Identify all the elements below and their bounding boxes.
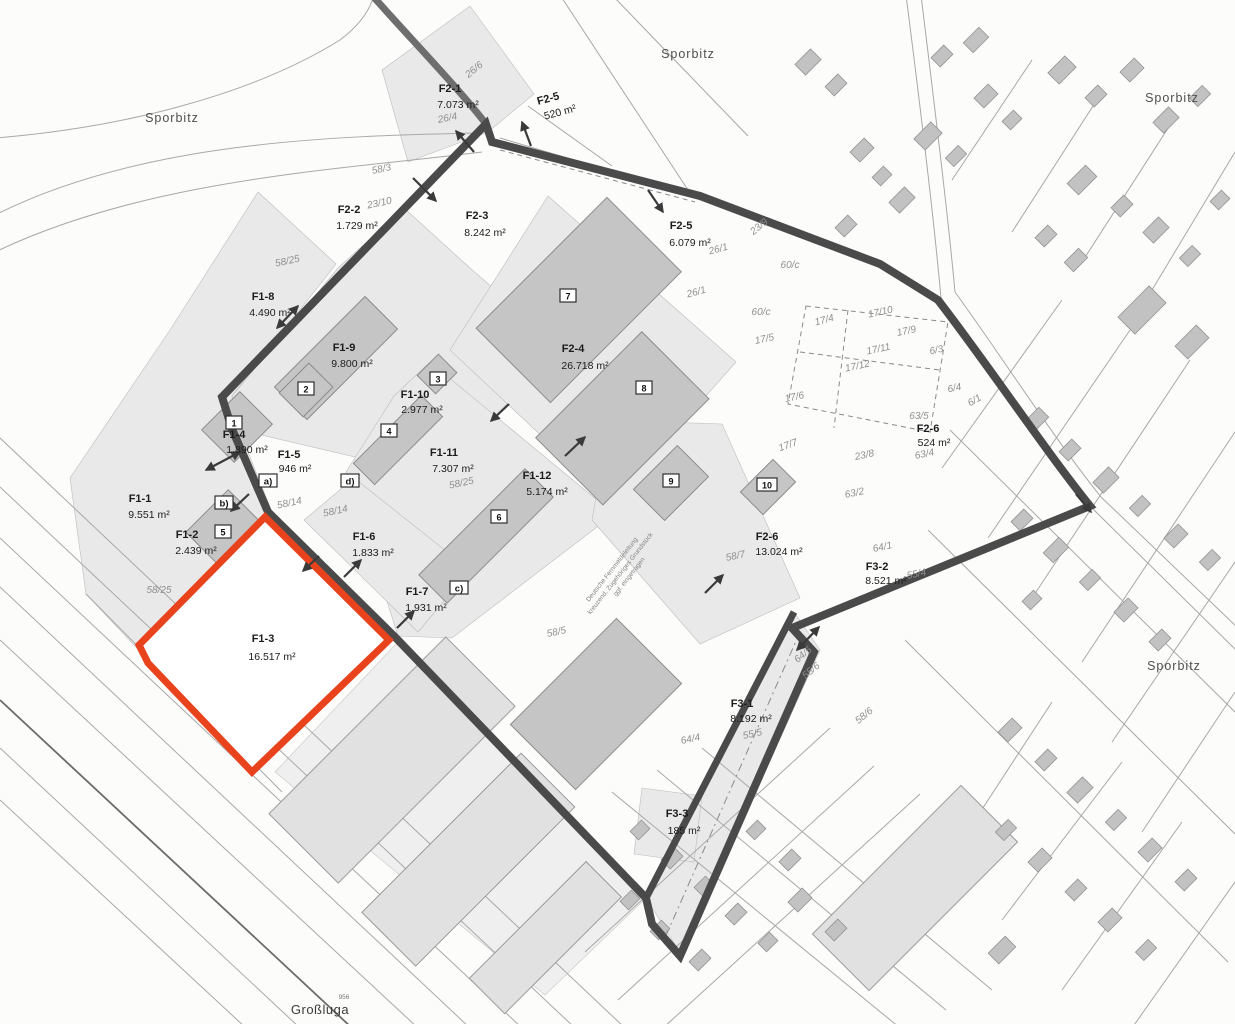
house-building bbox=[889, 187, 915, 213]
house-building bbox=[1149, 629, 1171, 651]
building-number: 1 bbox=[231, 419, 236, 429]
house-building bbox=[1048, 56, 1076, 84]
parcel-area: 7.073 m² bbox=[437, 99, 479, 111]
parcel-id: F1-4 bbox=[223, 429, 247, 441]
house-building bbox=[825, 74, 847, 96]
parcel-area: 6.079 m² bbox=[669, 237, 711, 249]
house-building bbox=[1135, 939, 1156, 960]
parcel-area: 1.833 m² bbox=[352, 547, 394, 559]
parcel-area: 5.174 m² bbox=[526, 486, 568, 498]
house-building bbox=[998, 718, 1022, 742]
parcel-area: 1.931 m² bbox=[405, 602, 447, 614]
house-building bbox=[1059, 439, 1081, 461]
parcel-id: F1-1 bbox=[129, 493, 152, 505]
letter-marker: d) bbox=[346, 477, 355, 488]
lot-number: 6/4 bbox=[947, 382, 963, 396]
house-building bbox=[1093, 467, 1119, 493]
parcel-id: F1-11 bbox=[430, 447, 458, 459]
house-building bbox=[963, 27, 988, 52]
parcel-area: 185 m² bbox=[668, 825, 701, 837]
building-number: 6 bbox=[496, 513, 501, 523]
house-building bbox=[779, 849, 801, 871]
parcel-area: 16.517 m² bbox=[248, 651, 296, 663]
parcel-area: 2.977 m² bbox=[401, 404, 443, 416]
house-building bbox=[1079, 569, 1100, 590]
map-canvas: Sporbitz Sporbitz Sporbitz Sporbitz Groß… bbox=[0, 0, 1235, 1024]
parcel-id: F1-6 bbox=[353, 531, 376, 543]
lot-number: 6/1 bbox=[966, 393, 984, 409]
lot-number: 58/6 bbox=[853, 705, 875, 726]
parcel-area: 8.192 m² bbox=[730, 713, 772, 725]
lot-number: 63/5 bbox=[909, 411, 929, 422]
tiny-lot-label: 956 bbox=[339, 994, 350, 1001]
house-building bbox=[1114, 598, 1138, 622]
house-building bbox=[795, 49, 821, 75]
district-label: Sporbitz bbox=[145, 111, 199, 125]
parcel-area: 524 m² bbox=[918, 437, 951, 449]
house-building bbox=[1085, 85, 1107, 107]
parcel-area: 946 m² bbox=[279, 463, 312, 475]
lot-number: 23/10 bbox=[365, 195, 393, 211]
house-building bbox=[988, 936, 1016, 964]
lot-number: 60/c bbox=[752, 307, 771, 318]
house-building bbox=[850, 138, 874, 162]
parcel-area: 9.551 m² bbox=[128, 509, 170, 521]
lot-number: 17/12 bbox=[844, 358, 871, 374]
house-building bbox=[1153, 107, 1179, 133]
house-building bbox=[1143, 217, 1169, 243]
house-building bbox=[1022, 590, 1042, 610]
lot-number: 17/11 bbox=[865, 342, 891, 358]
building-number: 10 bbox=[762, 481, 772, 491]
place-label: Großluga bbox=[291, 1002, 349, 1017]
house-building bbox=[1035, 225, 1057, 247]
house-building bbox=[1067, 165, 1097, 195]
lot-number: 26/1 bbox=[685, 285, 708, 301]
lot-number: 17/7 bbox=[777, 437, 799, 454]
house-building bbox=[1002, 110, 1022, 130]
lot-number: 58/14 bbox=[276, 495, 303, 511]
parcel-area: 1.890 m² bbox=[226, 444, 268, 456]
parcel-id: F1-12 bbox=[523, 470, 552, 482]
lot-number: 58/5 bbox=[546, 625, 568, 640]
parcel-id: F2-2 bbox=[338, 204, 361, 216]
house-building bbox=[835, 215, 857, 237]
lot-number: 63/2 bbox=[844, 486, 866, 501]
arrow-icon bbox=[522, 122, 531, 146]
house-building bbox=[1064, 248, 1087, 271]
lot-number: 64/4 bbox=[680, 732, 702, 747]
building-number: 3 bbox=[435, 375, 440, 385]
parcel-id: F2-6 bbox=[756, 531, 779, 543]
letter-marker: b) bbox=[220, 499, 229, 510]
parcel-id: F1-3 bbox=[252, 633, 275, 645]
lot-number: 58/25 bbox=[146, 585, 171, 596]
parcel-area: 4.490 m² bbox=[249, 307, 291, 319]
building-number: 7 bbox=[565, 292, 570, 302]
parcel-id: F3-3 bbox=[666, 808, 689, 820]
district-label: Sporbitz bbox=[661, 47, 715, 61]
house-building bbox=[974, 84, 998, 108]
house-building bbox=[725, 903, 747, 925]
house-building bbox=[931, 45, 953, 67]
cadastral-map: Sporbitz Sporbitz Sporbitz Sporbitz Groß… bbox=[0, 0, 1235, 1024]
house-building bbox=[914, 122, 942, 150]
lot-number: 17/6 bbox=[784, 390, 806, 405]
building-number: 5 bbox=[220, 528, 225, 538]
house-building bbox=[1043, 537, 1068, 562]
parcel-id: F2-5 bbox=[536, 90, 561, 107]
parcel-id: F1-5 bbox=[278, 449, 301, 461]
building-number: 4 bbox=[386, 427, 391, 437]
house-building bbox=[746, 820, 766, 840]
house-building bbox=[758, 932, 778, 952]
parcel-id: F2-5 bbox=[670, 220, 693, 232]
house-building bbox=[1179, 245, 1200, 266]
house-building bbox=[1067, 777, 1093, 803]
lot-number: 23/8 bbox=[853, 448, 876, 463]
parcel-id: F2-1 bbox=[439, 83, 462, 95]
house-building bbox=[1120, 58, 1144, 82]
building-number: 9 bbox=[668, 477, 673, 487]
district-label: Sporbitz bbox=[1147, 659, 1201, 673]
parcel-id: F2-3 bbox=[466, 210, 489, 222]
house-building bbox=[1129, 495, 1150, 516]
parcel-id: F3-2 bbox=[866, 561, 889, 573]
house-building bbox=[1111, 195, 1133, 217]
house-building bbox=[1028, 848, 1052, 872]
house-building bbox=[1118, 286, 1166, 334]
parcel-id: F1-2 bbox=[176, 529, 199, 541]
parcel-area: 13.024 m² bbox=[755, 546, 803, 558]
house-building bbox=[872, 166, 892, 186]
parcel-id: F3-1 bbox=[731, 698, 754, 710]
house-building bbox=[1065, 879, 1087, 901]
house-building bbox=[1164, 524, 1188, 548]
building-number: 2 bbox=[303, 385, 308, 395]
house-building bbox=[1035, 749, 1057, 771]
house-building bbox=[1175, 869, 1197, 891]
letter-marker: a) bbox=[264, 477, 272, 488]
parcel-area: 8.521 m² bbox=[865, 575, 907, 587]
hall-building bbox=[510, 618, 681, 789]
lot-number: 63/4 bbox=[914, 447, 936, 462]
parcel-id: F1-8 bbox=[252, 291, 275, 303]
parcel-id: F2-6 bbox=[917, 423, 940, 435]
warehouse-building bbox=[812, 785, 1017, 990]
lot-number: 17/4 bbox=[814, 313, 836, 329]
house-building bbox=[1105, 809, 1126, 830]
parcel-id: F1-9 bbox=[333, 342, 356, 354]
lot-number: 17/10 bbox=[867, 304, 894, 320]
parcel-area: 1.729 m² bbox=[336, 220, 378, 232]
house-building bbox=[1138, 838, 1162, 862]
letter-marker: c) bbox=[455, 584, 463, 595]
lot-number: 55/4 bbox=[906, 567, 928, 582]
house-building bbox=[788, 888, 812, 912]
lot-number: 17/5 bbox=[754, 332, 776, 347]
parcel-id: F2-4 bbox=[562, 343, 586, 355]
lot-number: 17/9 bbox=[896, 324, 918, 339]
parcel-area: 2.439 m² bbox=[175, 545, 217, 557]
parcel-id: F1-10 bbox=[401, 389, 430, 401]
house-building bbox=[1175, 325, 1209, 359]
lot-number: 6/3 bbox=[929, 344, 945, 358]
house-building bbox=[1199, 549, 1220, 570]
parcel-area: 9.800 m² bbox=[331, 358, 373, 370]
lot-number: 64/1 bbox=[872, 540, 893, 555]
parcel-id: F1-7 bbox=[406, 586, 429, 598]
lot-number: 60/c bbox=[781, 260, 800, 271]
house-building bbox=[1210, 190, 1230, 210]
house-building bbox=[689, 949, 711, 971]
parcel-area: 7.307 m² bbox=[432, 463, 474, 475]
parcel-area: 26.718 m² bbox=[561, 360, 609, 372]
district-label: Sporbitz bbox=[1145, 91, 1199, 105]
parcel-area: 8.242 m² bbox=[464, 227, 506, 239]
building-number: 8 bbox=[641, 384, 646, 394]
